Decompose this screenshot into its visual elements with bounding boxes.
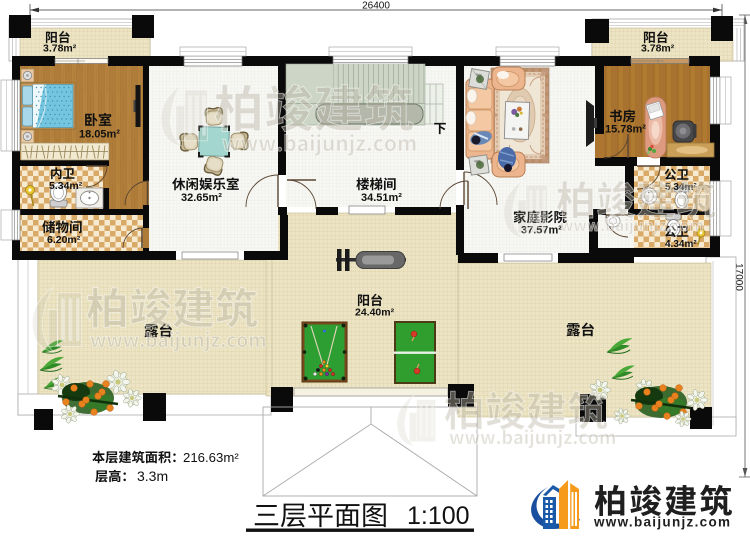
svg-text:4.34m²: 4.34m² <box>665 239 697 250</box>
svg-text:216.63m²: 216.63m² <box>183 450 239 465</box>
svg-text:3.78m²: 3.78m² <box>43 43 77 55</box>
svg-text:34.51m²: 34.51m² <box>361 192 402 204</box>
svg-text:24.40m²: 24.40m² <box>355 307 395 319</box>
svg-text:6.20m²: 6.20m² <box>47 234 81 246</box>
svg-text:26400: 26400 <box>362 1 390 12</box>
svg-text:www.baijunjz.com: www.baijunjz.com <box>593 515 731 530</box>
svg-text:32.65m²: 32.65m² <box>181 192 222 204</box>
svg-text:15.78m²: 15.78m² <box>605 124 646 136</box>
svg-text:3.78m²: 3.78m² <box>641 43 675 55</box>
svg-text:1:100: 1:100 <box>407 502 470 530</box>
svg-text:5.34m²: 5.34m² <box>49 180 83 192</box>
svg-text:3.3m: 3.3m <box>137 468 168 484</box>
svg-text:18.05m²: 18.05m² <box>79 129 120 141</box>
